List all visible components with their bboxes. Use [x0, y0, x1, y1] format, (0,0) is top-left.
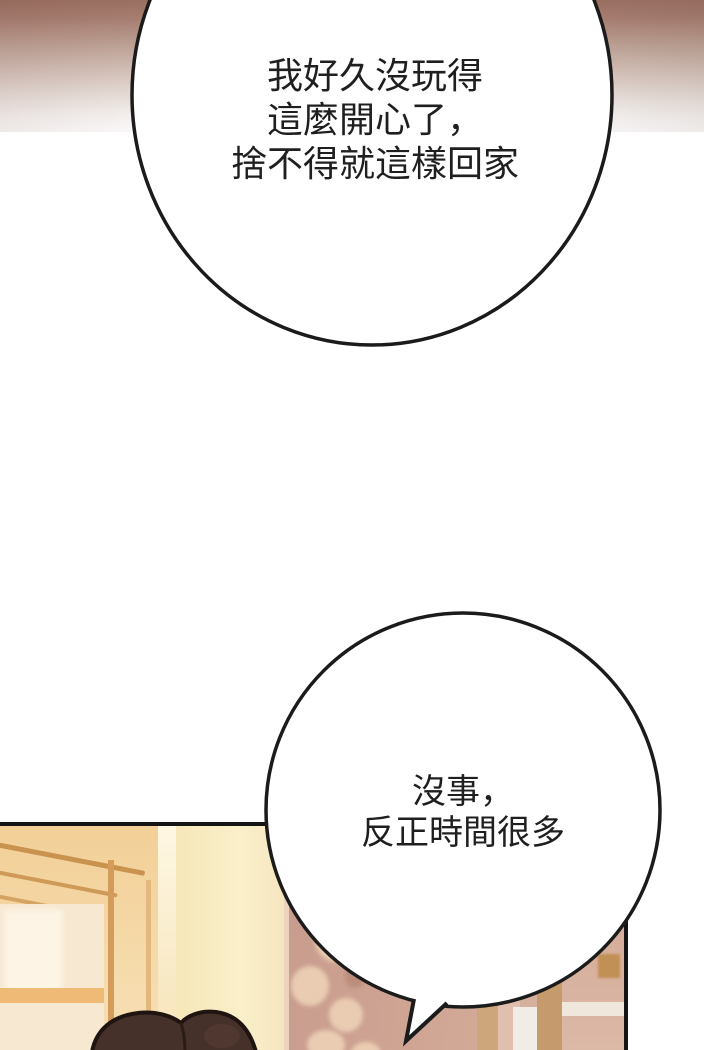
background-light-band — [562, 1002, 624, 1016]
comic-page: { "page": { "width": 704, "height": 1050… — [0, 0, 704, 1050]
wall-section — [176, 826, 284, 1050]
scene-panel — [0, 822, 628, 1050]
door-rail — [0, 988, 104, 1003]
bokeh-spot — [345, 966, 365, 988]
speech-line: 沒事， — [300, 772, 626, 813]
speech-line: 這麼開心了， — [180, 99, 570, 143]
wood-strip — [562, 826, 624, 1050]
background-highlight-rect — [513, 1007, 537, 1050]
speech-line: 捨不得就這樣回家 — [180, 143, 570, 187]
bokeh-spot — [329, 998, 363, 1032]
wood-strip — [477, 826, 498, 1050]
door-frame-area — [0, 826, 176, 1050]
bokeh-spot — [297, 876, 327, 910]
door-frame-line — [0, 842, 145, 876]
speech-line: 我好久沒玩得 — [180, 55, 570, 99]
background-patch — [598, 954, 620, 978]
door-frame-line — [0, 870, 118, 898]
speech-bubble-2-text: 沒事， 反正時間很多 — [300, 772, 626, 854]
bokeh-spot — [351, 1042, 381, 1050]
bokeh-spot — [315, 918, 357, 962]
door-panel-highlight — [4, 910, 62, 998]
speech-line: 反正時間很多 — [300, 813, 626, 854]
door-frame-vertical — [108, 860, 114, 1050]
speech-bubble-1-text: 我好久沒玩得 這麼開心了， 捨不得就這樣回家 — [180, 55, 570, 187]
wood-strip — [537, 826, 562, 1050]
door-frame-vertical — [146, 880, 151, 1050]
door-frame-highlight-strip — [158, 826, 176, 1050]
bokeh-spot — [291, 966, 329, 1006]
door-panel — [0, 904, 104, 1050]
bokeh-spot — [341, 882, 357, 898]
bokeh-spot — [307, 1030, 345, 1050]
